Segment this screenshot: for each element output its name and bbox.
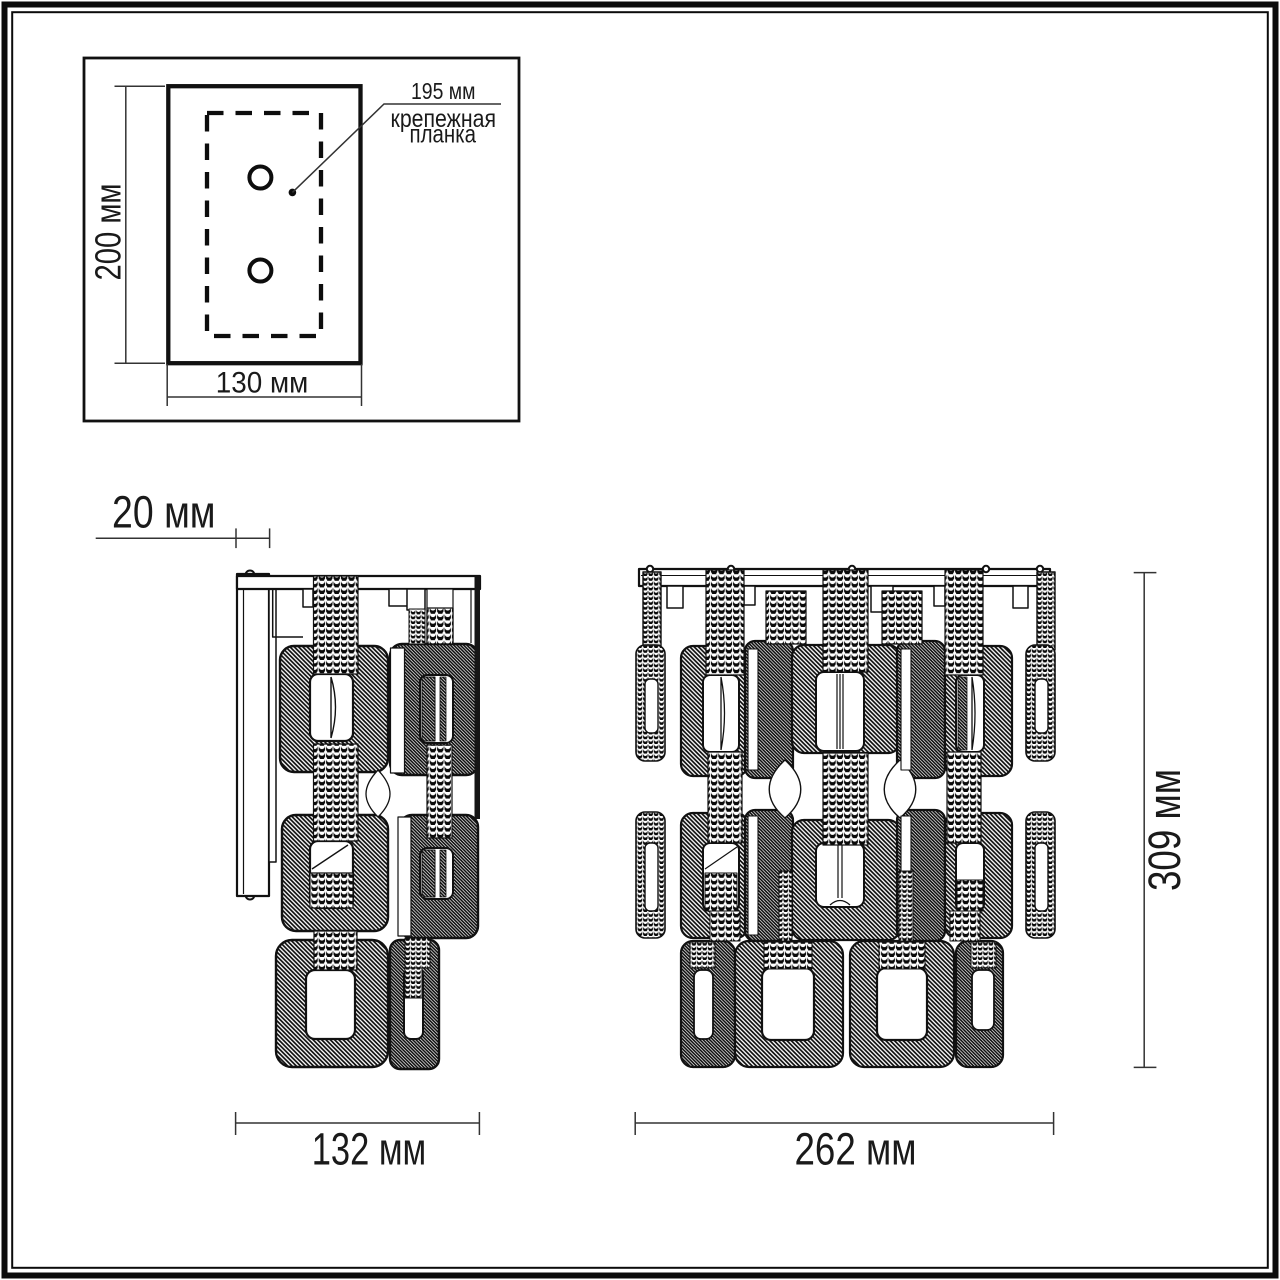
svg-text:309 мм: 309 мм xyxy=(1139,769,1190,891)
svg-text:132 мм: 132 мм xyxy=(312,1124,427,1175)
svg-text:130 мм: 130 мм xyxy=(216,367,309,400)
svg-text:планка: планка xyxy=(410,121,477,149)
svg-text:20 мм: 20 мм xyxy=(112,487,216,538)
svg-text:262 мм: 262 мм xyxy=(795,1124,917,1175)
svg-text:195 мм: 195 мм xyxy=(411,78,476,104)
svg-text:200 мм: 200 мм xyxy=(88,184,129,281)
